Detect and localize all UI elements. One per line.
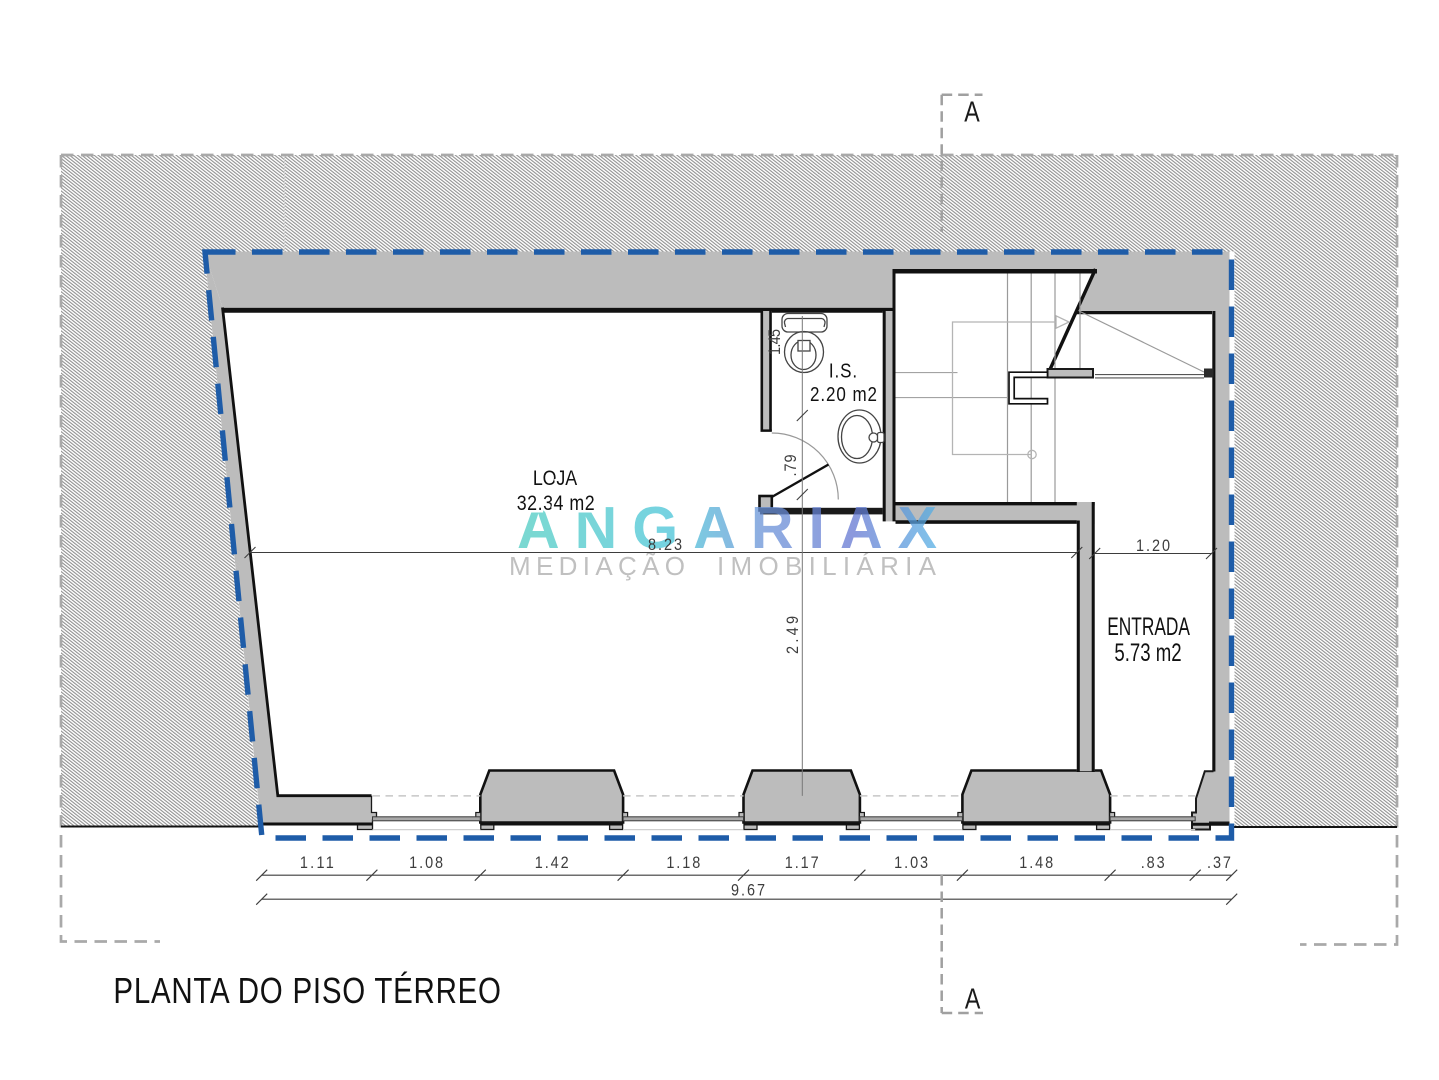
svg-text:8.23: 8.23 [648,536,682,554]
svg-text:MEDIAÇÃO: MEDIAÇÃO [509,551,685,581]
svg-text:1.08: 1.08 [409,854,443,872]
svg-text:PLANTA DO PISO TÉRREO: PLANTA DO PISO TÉRREO [113,970,501,1010]
svg-text:1.20: 1.20 [1136,537,1170,555]
svg-text:.83: .83 [1141,854,1165,872]
svg-text:1.18: 1.18 [666,854,700,872]
svg-text:.37: .37 [1207,854,1231,872]
svg-text:2.20 m2: 2.20 m2 [810,383,877,406]
svg-text:2.49: 2.49 [784,616,802,654]
svg-text:ENTRADA: ENTRADA [1107,612,1190,640]
svg-text:LOJA: LOJA [533,467,577,491]
svg-text:1.17: 1.17 [785,854,819,872]
svg-text:5.73 m2: 5.73 m2 [1114,638,1181,666]
svg-text:1.42: 1.42 [535,854,569,872]
svg-text:I.S.: I.S. [829,359,857,382]
svg-text:.79: .79 [782,454,800,476]
svg-text:1.11: 1.11 [300,854,334,872]
svg-text:1.03: 1.03 [894,854,928,872]
svg-text:A: A [964,95,980,128]
svg-text:9.67: 9.67 [731,881,765,899]
svg-text:A: A [965,982,981,1015]
svg-text:1.48: 1.48 [1019,854,1053,872]
svg-text:32.34 m2: 32.34 m2 [517,492,595,516]
svg-text:1.45: 1.45 [766,329,784,355]
